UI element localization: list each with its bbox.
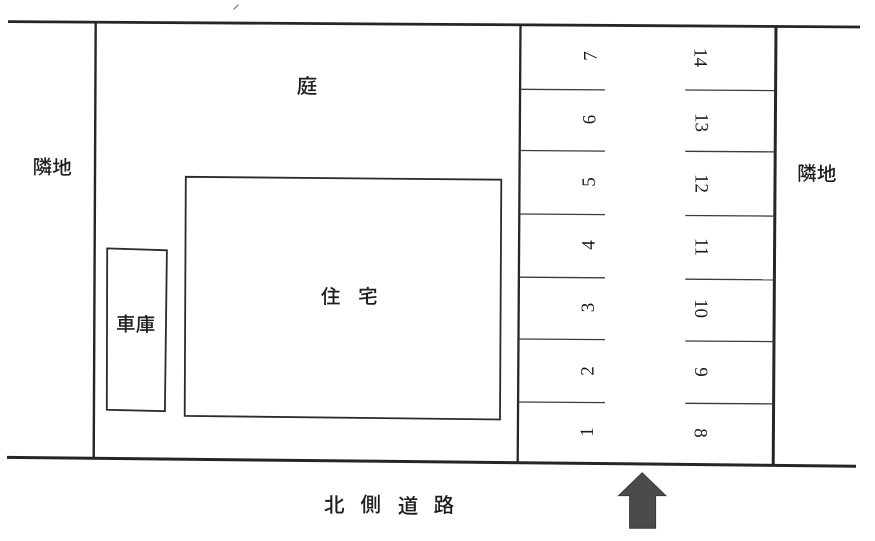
svg-text:13: 13 bbox=[691, 113, 712, 132]
svg-text:11: 11 bbox=[691, 238, 712, 256]
svg-text:10: 10 bbox=[690, 299, 711, 318]
svg-text:7: 7 bbox=[581, 51, 602, 61]
svg-text:6: 6 bbox=[580, 115, 601, 125]
svg-text:1: 1 bbox=[577, 427, 598, 437]
svg-text:3: 3 bbox=[578, 303, 599, 313]
svg-text:2: 2 bbox=[578, 366, 599, 376]
svg-text:8: 8 bbox=[690, 428, 711, 438]
svg-text:4: 4 bbox=[579, 240, 600, 250]
svg-text:5: 5 bbox=[579, 177, 600, 187]
svg-text:12: 12 bbox=[691, 174, 712, 193]
svg-text:9: 9 bbox=[690, 367, 711, 377]
svg-text:14: 14 bbox=[690, 48, 711, 68]
